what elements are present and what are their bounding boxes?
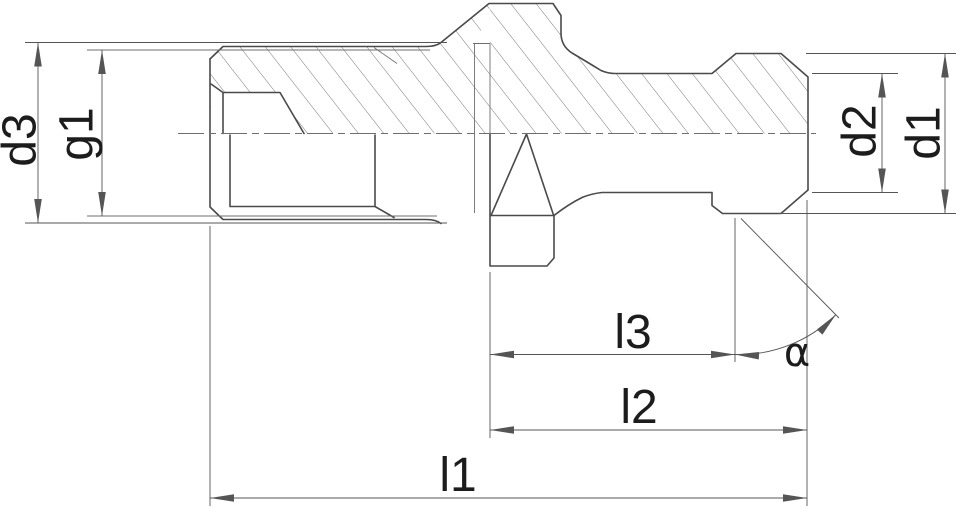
alpha-chamfer-extension (741, 219, 839, 319)
label-g1: g1 (51, 107, 104, 160)
label-l1: l1 (439, 449, 476, 502)
pull-stud-technical-drawing: d3 g1 d2 d1 l3 l2 l1 α (0, 0, 960, 516)
head-outline-lower (712, 190, 808, 214)
label-l2: l2 (620, 381, 657, 434)
flange-to-neck-lower (554, 193, 712, 216)
label-l3: l3 (614, 306, 651, 359)
wrench-flat (230, 135, 394, 218)
drawing-canvas: d3 g1 d2 d1 l3 l2 l1 α (0, 0, 960, 516)
label-alpha: α (784, 330, 810, 376)
label-d3: d3 (0, 113, 47, 166)
radial-bore-cone (491, 134, 554, 216)
label-d2: d2 (834, 104, 887, 157)
label-d1: d1 (898, 106, 951, 159)
radial-bore-section (490, 134, 554, 267)
